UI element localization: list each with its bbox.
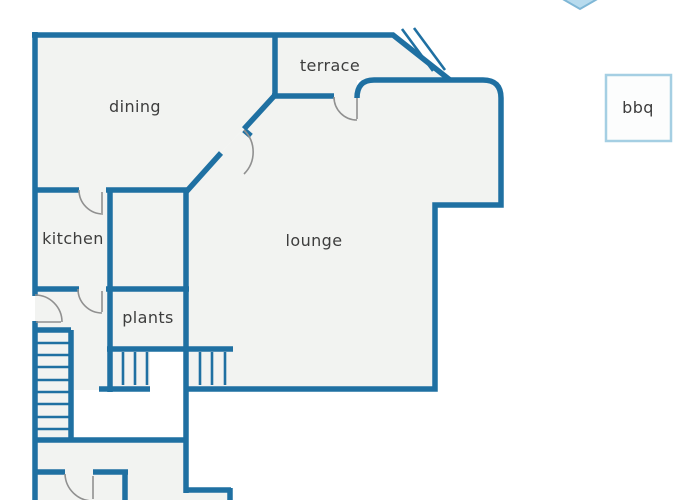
room-label-bbq: bbq: [622, 98, 654, 117]
room-label-lounge: lounge: [286, 231, 343, 250]
floorplan-stage: dining terrace kitchen lounge plants bbq: [0, 0, 700, 500]
room-label-dining: dining: [109, 97, 161, 116]
room-storage[interactable]: [110, 190, 186, 289]
staircase-floor: [35, 330, 71, 440]
compass-diamond-icon: [554, 0, 606, 9]
porch-steps-left-floor: [110, 349, 150, 390]
room-label-terrace: terrace: [300, 56, 360, 75]
room-label-plants: plants: [122, 308, 174, 327]
floorplan-canvas: dining terrace kitchen lounge plants bbq: [0, 0, 700, 500]
room-label-kitchen: kitchen: [42, 229, 104, 248]
